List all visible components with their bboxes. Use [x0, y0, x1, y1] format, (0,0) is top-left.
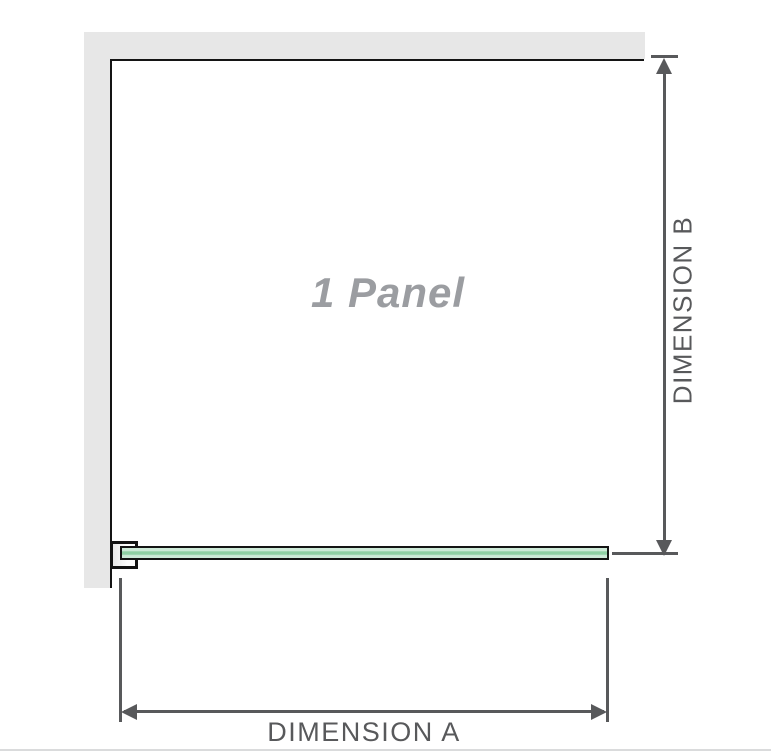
wall-left-strip: [84, 32, 110, 588]
panel-left-edge-line: [110, 59, 112, 588]
diagram-canvas: 1 Panel DIMENSION B DIMENSION A: [0, 0, 771, 755]
dimension-a-line: [124, 710, 604, 713]
arrow-left-icon: [121, 704, 137, 720]
panel-label: 1 Panel: [311, 269, 465, 317]
wall-top-strip: [84, 32, 645, 59]
panel-top-edge-line: [110, 59, 644, 61]
arrow-up-icon: [656, 58, 672, 74]
arrow-down-icon: [656, 540, 672, 556]
dimension-b-label: DIMENSION B: [668, 216, 699, 404]
dimension-b-line: [663, 62, 666, 554]
dimension-a-right-extension-line: [606, 578, 609, 722]
arrow-right-icon: [591, 704, 607, 720]
dimension-a-label: DIMENSION A: [267, 717, 461, 748]
glass-panel-bar: [120, 546, 609, 560]
bottom-page-divider: [0, 749, 771, 751]
dimension-a-left-extension-line: [119, 578, 122, 722]
